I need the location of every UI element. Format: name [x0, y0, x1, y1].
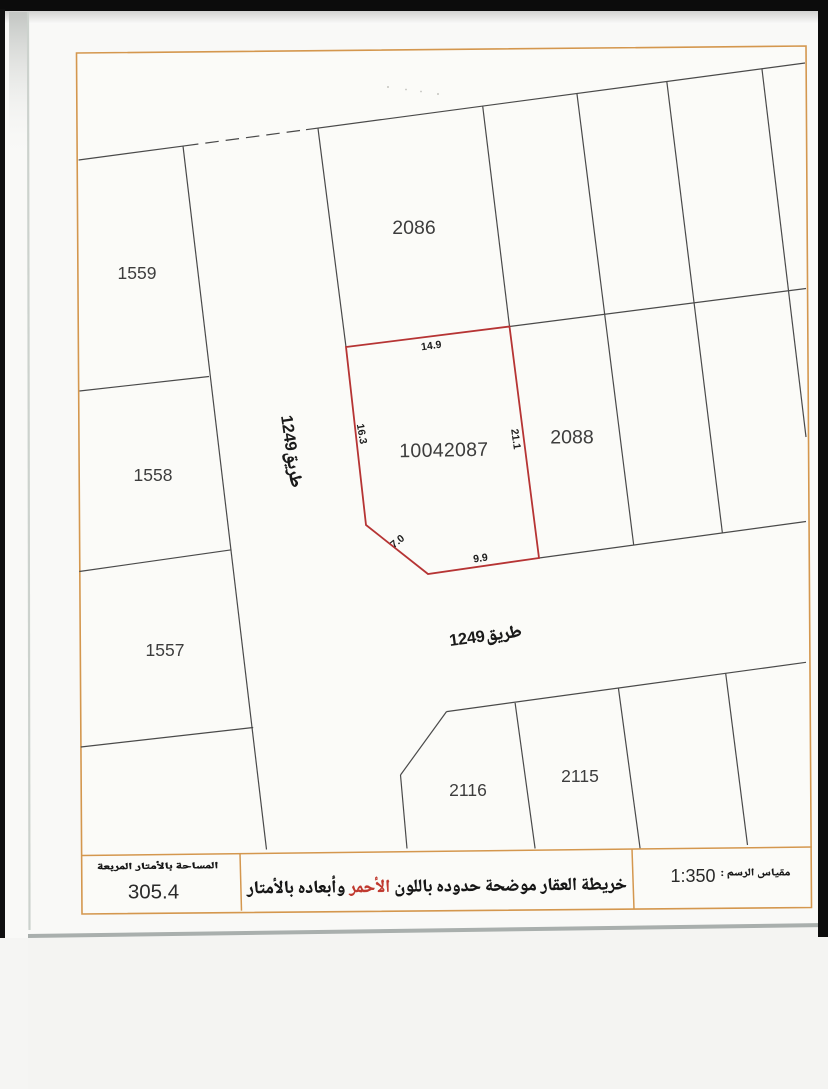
svg-text:1559: 1559 — [118, 263, 157, 283]
svg-text:2086: 2086 — [392, 217, 435, 239]
svg-text:305.4: 305.4 — [128, 881, 179, 904]
svg-text:2115: 2115 — [561, 766, 599, 786]
svg-text:10042087: 10042087 — [399, 439, 489, 463]
svg-text:2088: 2088 — [550, 427, 593, 449]
svg-text:2116: 2116 — [449, 780, 487, 800]
svg-text:1557: 1557 — [146, 640, 185, 660]
svg-text:1558: 1558 — [134, 465, 173, 485]
svg-text:1:350: 1:350 — [670, 866, 715, 886]
svg-text:9.9: 9.9 — [473, 552, 489, 566]
